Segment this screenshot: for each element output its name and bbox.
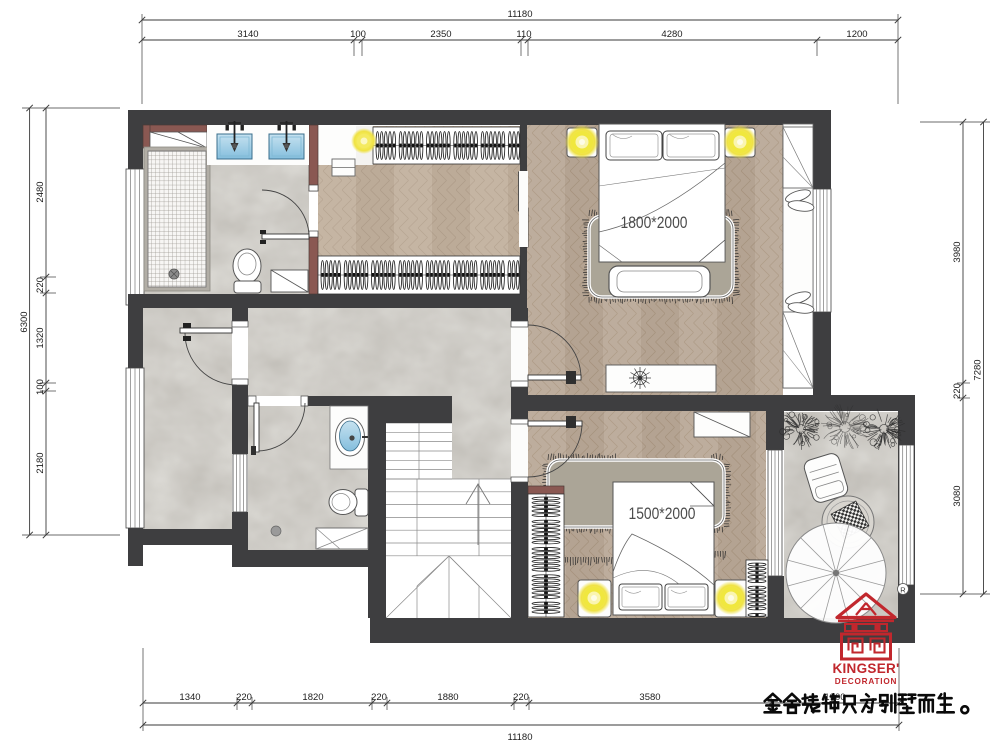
- svg-text:110: 110: [516, 29, 531, 40]
- svg-text:6300: 6300: [19, 311, 30, 332]
- svg-text:4280: 4280: [661, 29, 682, 40]
- svg-text:220: 220: [35, 277, 46, 293]
- svg-text:2480: 2480: [35, 181, 46, 202]
- svg-text:11180: 11180: [507, 9, 532, 20]
- svg-text:1200: 1200: [846, 29, 867, 40]
- svg-text:2350: 2350: [430, 29, 451, 40]
- svg-text:220: 220: [371, 692, 387, 703]
- svg-text:1820: 1820: [302, 692, 323, 703]
- svg-text:100: 100: [35, 379, 46, 395]
- svg-text:220: 220: [236, 692, 252, 703]
- svg-text:3980: 3980: [952, 241, 963, 262]
- svg-text:3140: 3140: [237, 29, 258, 40]
- svg-text:1880: 1880: [437, 692, 458, 703]
- svg-text:220: 220: [513, 692, 529, 703]
- svg-text:1340: 1340: [179, 692, 200, 703]
- svg-text:1320: 1320: [35, 327, 46, 348]
- svg-text:2180: 2180: [35, 452, 46, 473]
- svg-text:3580: 3580: [639, 692, 660, 703]
- svg-text:100: 100: [350, 29, 366, 40]
- svg-text:220: 220: [952, 383, 963, 399]
- svg-text:DECORATION: DECORATION: [835, 677, 897, 686]
- svg-text:11180: 11180: [507, 732, 532, 743]
- svg-text:R: R: [900, 586, 906, 595]
- svg-text:1800*2000: 1800*2000: [621, 214, 688, 232]
- svg-text:3080: 3080: [952, 485, 963, 506]
- svg-text:7280: 7280: [973, 359, 984, 380]
- svg-text:KINGSER': KINGSER': [832, 661, 899, 676]
- svg-text:1500*2000: 1500*2000: [629, 505, 696, 523]
